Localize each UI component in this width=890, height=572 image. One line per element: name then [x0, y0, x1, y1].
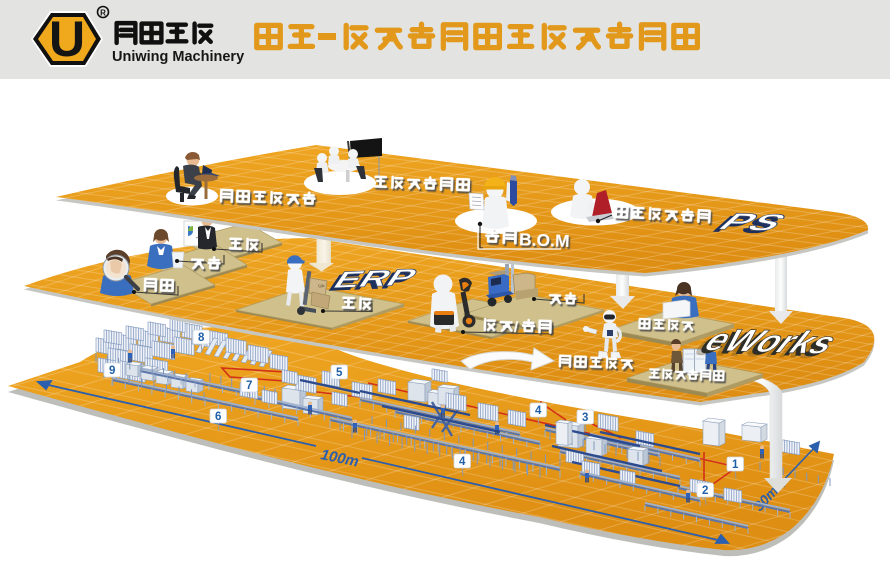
svg-text:8: 8 — [198, 332, 205, 344]
svg-text:1: 1 — [732, 459, 739, 471]
svg-text:2: 2 — [702, 485, 708, 497]
svg-text:4: 4 — [535, 405, 542, 417]
svg-text:R: R — [100, 9, 106, 18]
svg-text:U: U — [49, 11, 85, 67]
svg-text:4: 4 — [459, 456, 466, 468]
svg-text:Uniwing Machinery: Uniwing Machinery — [112, 49, 244, 65]
svg-text:7: 7 — [246, 380, 252, 392]
svg-text:5: 5 — [336, 367, 343, 379]
svg-text:3: 3 — [582, 412, 588, 424]
svg-text:6: 6 — [215, 411, 221, 423]
svg-text:B.O.M: B.O.M — [519, 229, 570, 251]
svg-text:9: 9 — [109, 365, 115, 377]
